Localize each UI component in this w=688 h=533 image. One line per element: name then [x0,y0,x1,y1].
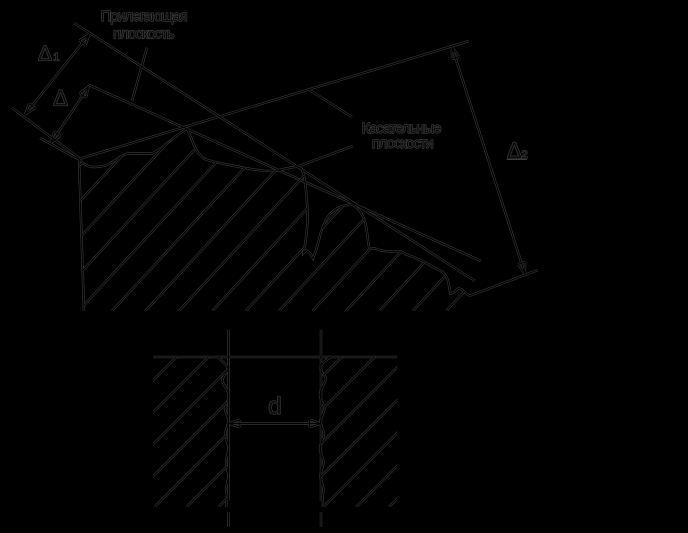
svg-text:плоскости: плоскости [372,135,434,152]
svg-text:1: 1 [53,52,59,64]
svg-text:Δ: Δ [53,86,68,111]
svg-text:d: d [268,393,281,420]
svg-text:Δ: Δ [38,43,52,66]
svg-text:плоскость: плоскость [113,25,175,42]
svg-text:Прилегающая: Прилегающая [100,8,187,25]
